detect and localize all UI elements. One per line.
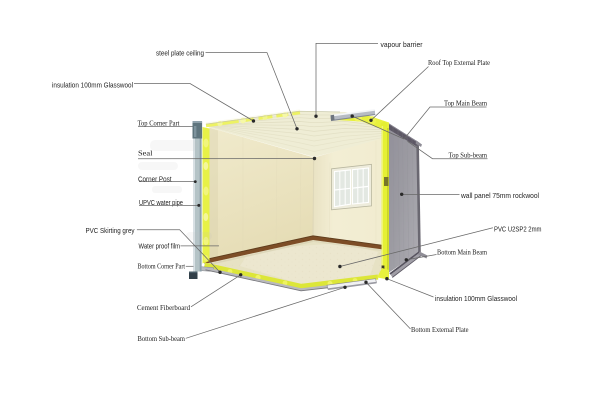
svg-text:vapour barrier: vapour barrier xyxy=(381,40,424,49)
svg-text:Top Sub-beam: Top Sub-beam xyxy=(449,150,488,159)
svg-text:Top Main Beam: Top Main Beam xyxy=(444,98,487,107)
svg-text:steel plate ceiling: steel plate ceiling xyxy=(156,48,204,57)
svg-text:PVC U2SP2 2mm: PVC U2SP2 2mm xyxy=(494,224,542,233)
svg-text:Cement Fiberboard: Cement Fiberboard xyxy=(137,303,190,312)
svg-text:Top Corner Part: Top Corner Part xyxy=(138,118,180,127)
svg-text:wall panel 75mm rockwool: wall panel 75mm rockwool xyxy=(460,191,539,200)
svg-text:Bottom Corner Part: Bottom Corner Part xyxy=(138,261,186,270)
svg-text:Roof Top External Plate: Roof Top External Plate xyxy=(428,58,491,67)
svg-text:insulation 100mm Glasswool: insulation 100mm Glasswool xyxy=(52,80,133,89)
svg-text:Seal: Seal xyxy=(138,150,153,158)
svg-text:Water proof film: Water proof film xyxy=(139,241,181,250)
svg-text:Bottom External Plate: Bottom External Plate xyxy=(411,325,469,334)
svg-text:Bottom Main Beam: Bottom Main Beam xyxy=(437,247,487,256)
svg-text:insulation 100mm Glasswool: insulation 100mm Glasswool xyxy=(435,294,517,303)
svg-text:Bottom Sub-beam: Bottom Sub-beam xyxy=(138,334,186,343)
svg-text:PVC Skirting grey: PVC Skirting grey xyxy=(86,226,135,235)
